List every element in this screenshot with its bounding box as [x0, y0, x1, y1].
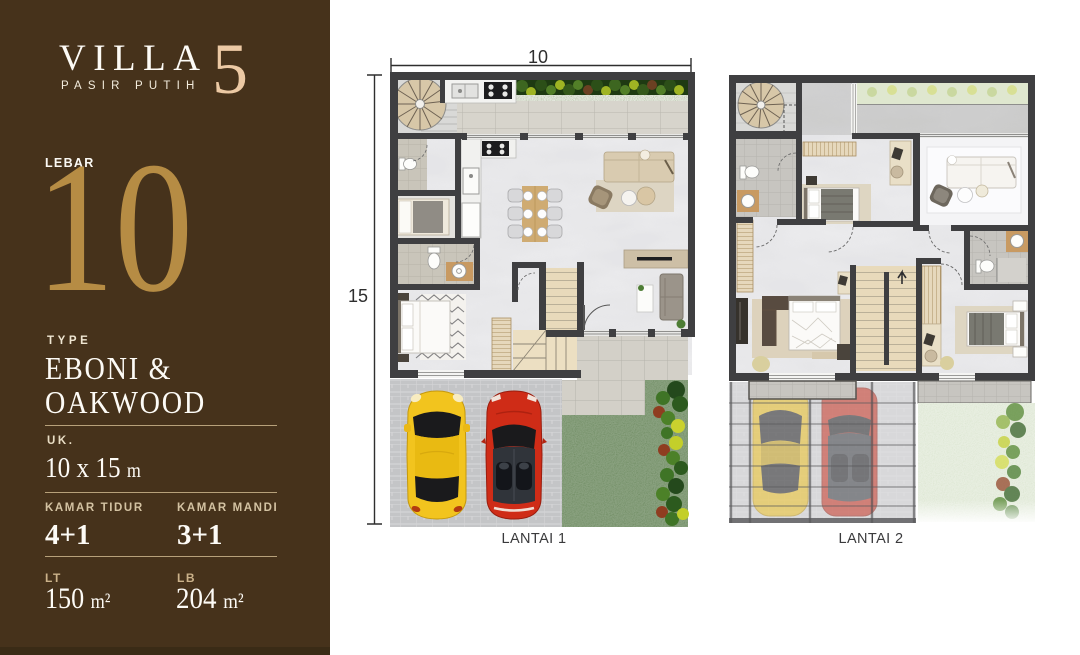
- svg-text:10: 10: [528, 47, 548, 67]
- svg-text:15: 15: [348, 286, 368, 306]
- svg-text:LANTAI 2: LANTAI 2: [839, 531, 904, 547]
- svg-text:LANTAI 1: LANTAI 1: [502, 531, 567, 547]
